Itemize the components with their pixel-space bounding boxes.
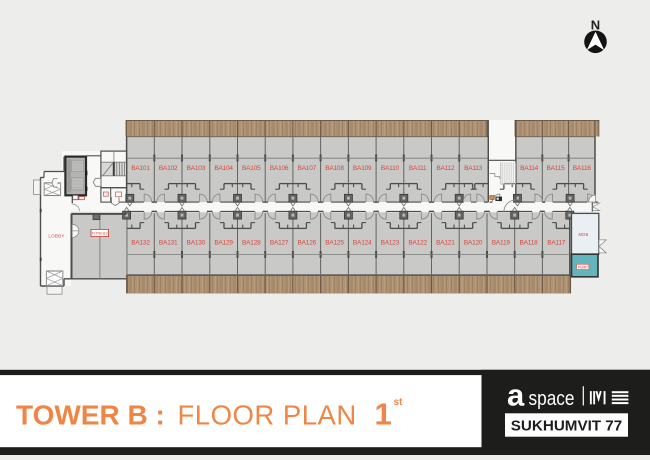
svg-text:st: st bbox=[394, 397, 404, 408]
svg-text:BA123: BA123 bbox=[381, 239, 400, 246]
svg-text:BA105: BA105 bbox=[242, 165, 261, 172]
svg-text:BA101: BA101 bbox=[131, 165, 150, 172]
svg-text:BA124: BA124 bbox=[353, 239, 372, 246]
svg-text:BA116: BA116 bbox=[573, 165, 592, 172]
svg-text:SUKHUMVIT 77: SUKHUMVIT 77 bbox=[511, 418, 622, 435]
svg-text:BA112: BA112 bbox=[436, 165, 455, 172]
svg-text:LOBBY: LOBBY bbox=[48, 234, 64, 239]
svg-text:BA110: BA110 bbox=[381, 165, 400, 172]
svg-text:BA111: BA111 bbox=[409, 165, 427, 172]
svg-text:N: N bbox=[591, 18, 600, 33]
svg-text:FITNESS: FITNESS bbox=[92, 232, 109, 236]
svg-text:BA113: BA113 bbox=[464, 165, 483, 172]
svg-text:BA126: BA126 bbox=[298, 239, 317, 246]
svg-text:BA122: BA122 bbox=[408, 239, 427, 246]
svg-text:PUMP: PUMP bbox=[578, 265, 589, 269]
svg-text:1: 1 bbox=[375, 397, 392, 432]
svg-text:BA117: BA117 bbox=[547, 239, 566, 246]
svg-text:MDB: MDB bbox=[579, 232, 589, 237]
svg-text:BA129: BA129 bbox=[214, 239, 233, 246]
svg-text:BA103: BA103 bbox=[187, 165, 206, 172]
svg-text:BA107: BA107 bbox=[298, 165, 317, 172]
svg-text:BA120: BA120 bbox=[464, 239, 483, 246]
svg-text:TOWER B :: TOWER B : bbox=[16, 400, 165, 431]
svg-text:FLOOR PLAN: FLOOR PLAN bbox=[178, 400, 357, 431]
svg-text:BA127: BA127 bbox=[270, 239, 289, 246]
svg-text:a: a bbox=[507, 377, 525, 412]
svg-text:BA106: BA106 bbox=[270, 165, 289, 172]
svg-text:BA125: BA125 bbox=[325, 239, 344, 246]
svg-text:BA132: BA132 bbox=[131, 239, 150, 246]
svg-text:BA119: BA119 bbox=[492, 239, 511, 246]
svg-text:BA130: BA130 bbox=[187, 239, 206, 246]
svg-text:BA114: BA114 bbox=[520, 165, 539, 172]
svg-text:BA118: BA118 bbox=[519, 239, 538, 246]
svg-text:BA115: BA115 bbox=[546, 165, 565, 172]
svg-text:BA108: BA108 bbox=[325, 165, 344, 172]
svg-text:BA102: BA102 bbox=[159, 165, 178, 172]
svg-text:BA109: BA109 bbox=[353, 165, 372, 172]
svg-text:space: space bbox=[529, 388, 575, 410]
svg-text:BA131: BA131 bbox=[159, 239, 178, 246]
svg-text:BA128: BA128 bbox=[242, 239, 261, 246]
svg-text:BA121: BA121 bbox=[436, 239, 455, 246]
svg-text:BA104: BA104 bbox=[214, 165, 233, 172]
